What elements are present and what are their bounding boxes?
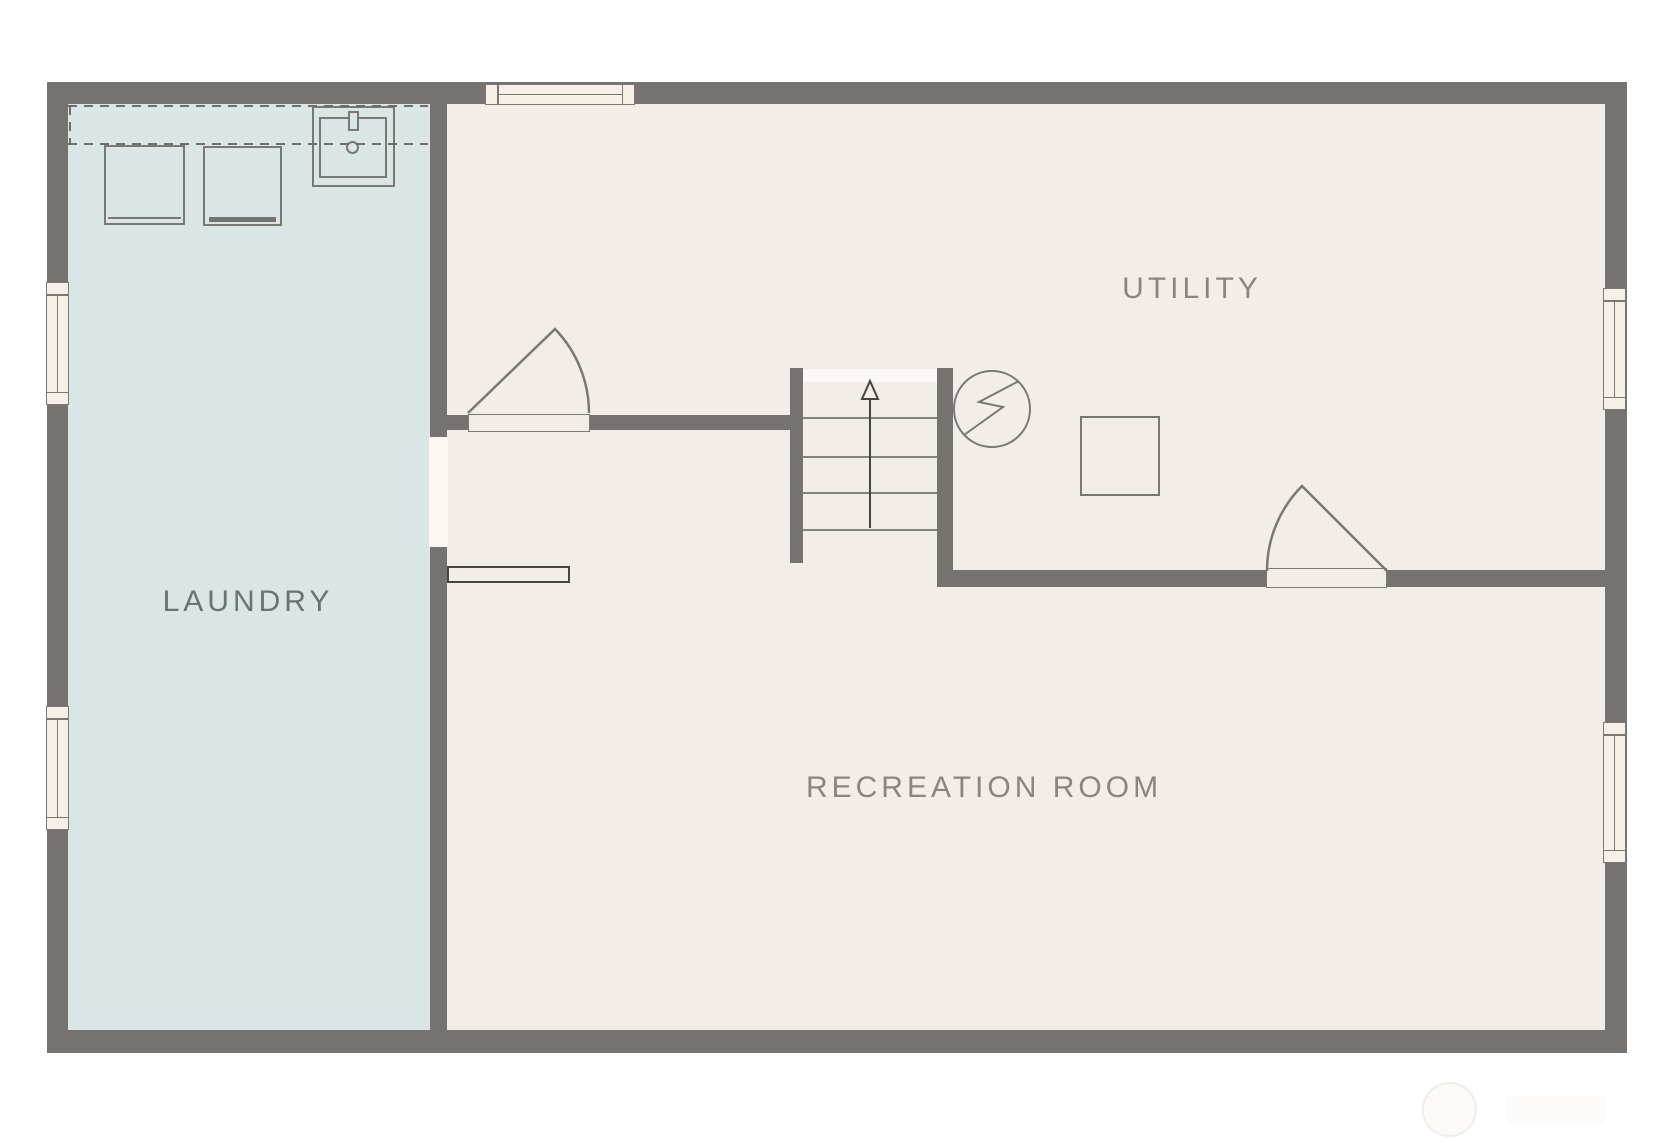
sink-drain [346, 141, 359, 154]
laundry-wall-upper [430, 104, 447, 437]
window-right-upper [1603, 288, 1626, 410]
window-left-upper [46, 282, 69, 405]
washer-detail-line [108, 217, 181, 219]
sink-faucet [348, 111, 359, 131]
laundry-wall-lower [430, 547, 447, 1030]
window-left-lower [46, 706, 69, 830]
window-top [485, 84, 635, 105]
room-label-recreation: RECREATION ROOM [806, 771, 1162, 805]
outer-wall-top [47, 82, 1627, 104]
window-glass-line [57, 719, 59, 817]
water-heater-icon [1080, 416, 1160, 496]
outer-wall-left [47, 82, 68, 1053]
laundry-room-floor [68, 104, 430, 1030]
dryer-detail-strip [209, 217, 276, 222]
stairs-wall-left [790, 368, 803, 563]
stairs-landing [803, 369, 937, 382]
window-glass-line [1614, 301, 1616, 397]
watermark-logo-circle [1422, 1082, 1477, 1137]
room-label-utility: UTILITY [1122, 272, 1262, 306]
dryer-icon [203, 146, 282, 226]
window-right-lower [1603, 722, 1626, 863]
watermark-text-ghost [1506, 1096, 1606, 1124]
hallway-door-threshold [468, 414, 590, 432]
window-glass-line [57, 295, 59, 392]
outer-wall-right [1605, 82, 1627, 1053]
outer-wall-bottom [47, 1030, 1627, 1053]
stairs-wall-right [937, 368, 953, 587]
laundry-doorway-opening [429, 437, 448, 547]
room-label-laundry: LAUNDRY [163, 585, 334, 619]
window-glass-line [498, 94, 622, 96]
window-glass-line [1614, 735, 1616, 850]
laundry-door-leaf [447, 566, 570, 583]
utility-door-threshold [1266, 568, 1387, 588]
washer-icon [104, 145, 185, 225]
floor-plan: LAUNDRY UTILITY RECREATION ROOM [0, 0, 1672, 1148]
